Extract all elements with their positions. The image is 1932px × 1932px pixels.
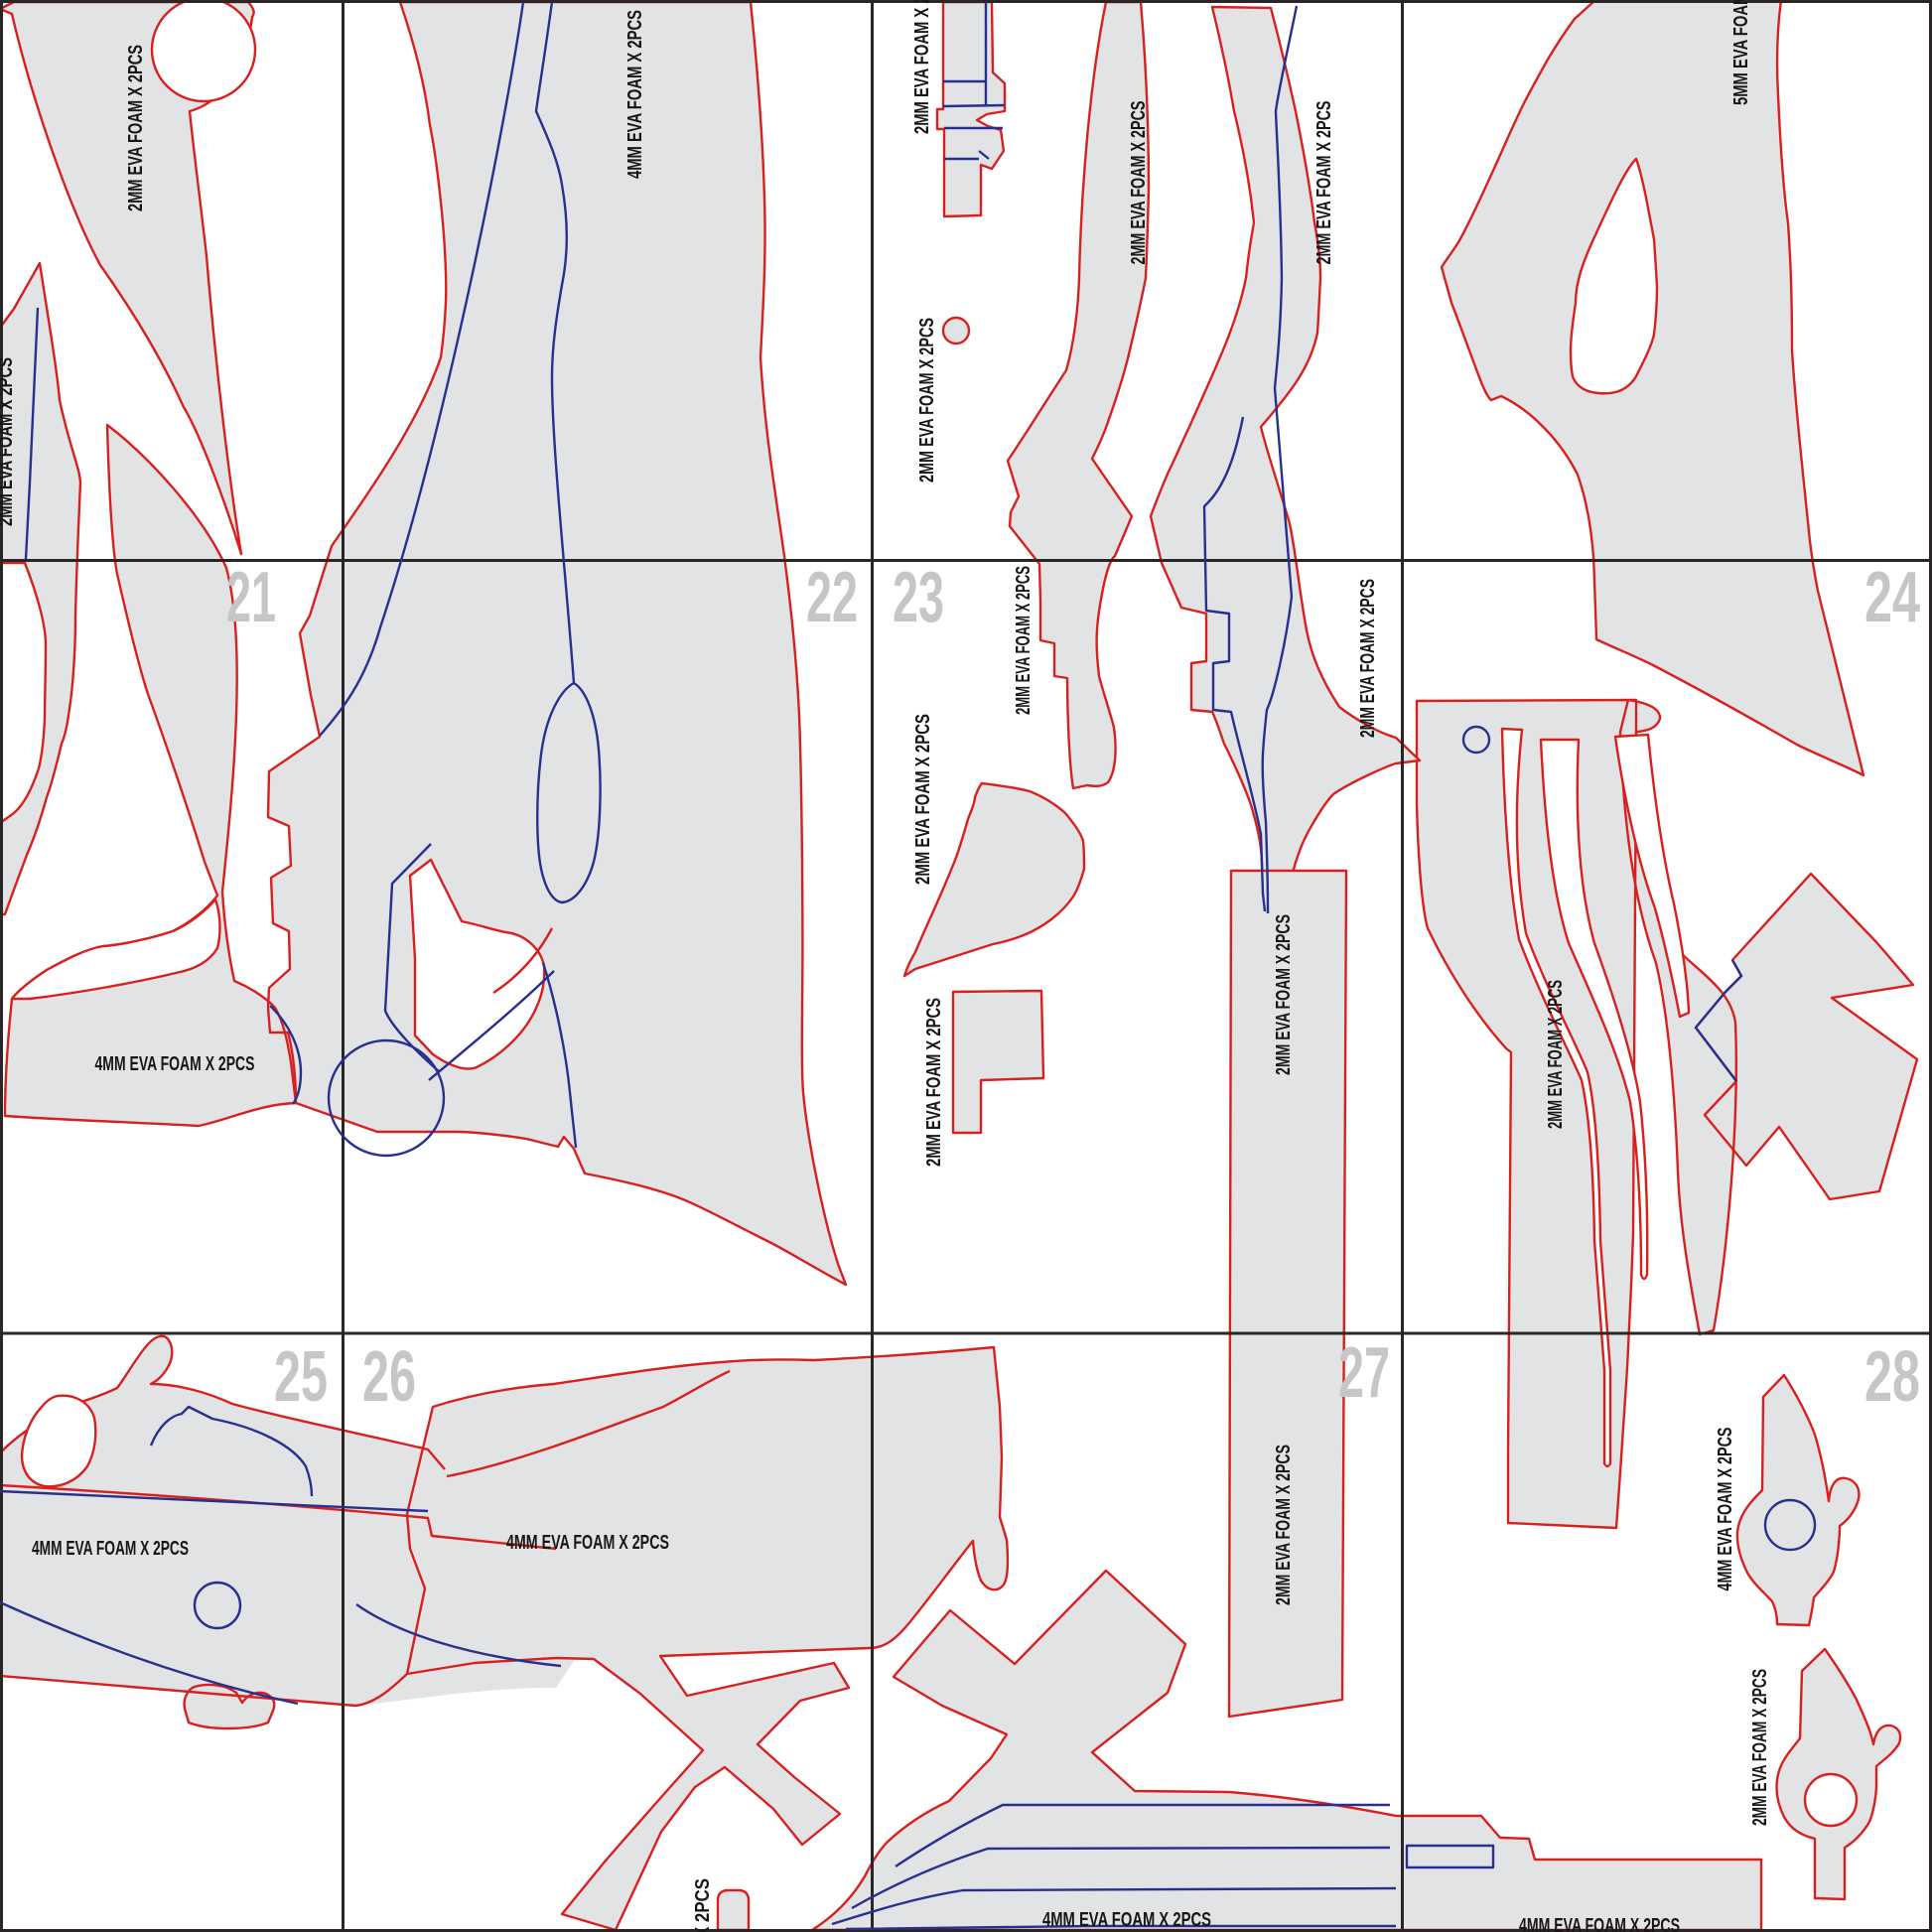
svg-text:2MM EVA FOAM X 2PCS: 2MM EVA FOAM X 2PCS — [1013, 566, 1035, 715]
svg-text:4MM EVA FOAM X 2PCS: 4MM EVA FOAM X 2PCS — [32, 1538, 189, 1560]
svg-text:2MM EVA FOAM X 2PCS: 2MM EVA FOAM X 2PCS — [1273, 1445, 1295, 1605]
svg-text:26: 26 — [362, 1337, 416, 1417]
svg-text:2MM EVA FOAM X 2PCS: 2MM EVA FOAM X 2PCS — [1273, 914, 1295, 1075]
svg-text:2MM EVA FOAM X 2PCS: 2MM EVA FOAM X 2PCS — [912, 714, 934, 885]
svg-text:27: 27 — [1338, 1333, 1390, 1413]
svg-text:2MM EVA FOAM X 2PCS: 2MM EVA FOAM X 2PCS — [0, 357, 17, 526]
svg-text:4MM EVA FOAM X 2PCS: 4MM EVA FOAM X 2PCS — [1715, 1428, 1736, 1591]
svg-text:4MM EVA FOAM X 2PCS: 4MM EVA FOAM X 2PCS — [1519, 1915, 1680, 1932]
svg-text:2MM EVA FOAM X 2PCS: 2MM EVA FOAM X 2PCS — [1313, 101, 1335, 265]
svg-text:2MM EVA FOAM X 2PCS: 2MM EVA FOAM X 2PCS — [923, 998, 945, 1167]
svg-text:4MM EVA FOAM X 2PCS: 4MM EVA FOAM X 2PCS — [624, 10, 646, 179]
svg-text:4MM EVA FOAM X 2PCS: 4MM EVA FOAM X 2PCS — [1042, 1909, 1211, 1931]
svg-text:21: 21 — [226, 558, 276, 637]
svg-text:25: 25 — [274, 1337, 328, 1417]
svg-text:4MM EVA FOAM X 2PCS: 4MM EVA FOAM X 2PCS — [95, 1053, 255, 1075]
svg-text:4MM EVA FOAM X 2PCS: 4MM EVA FOAM X 2PCS — [506, 1532, 669, 1554]
svg-text:28: 28 — [1864, 1337, 1920, 1417]
svg-text:2MM EVA FOAM X 2PCS: 2MM EVA FOAM X 2PCS — [125, 45, 147, 211]
svg-text:24: 24 — [1864, 558, 1920, 637]
svg-text:23: 23 — [893, 558, 944, 637]
svg-text:22: 22 — [806, 558, 858, 637]
svg-text:2MM EVA FOAM X 2PCS: 2MM EVA FOAM X 2PCS — [916, 318, 938, 483]
svg-text:2MM EVA FOAM X 2PCS: 2MM EVA FOAM X 2PCS — [911, 0, 933, 134]
svg-text:2MM EVA FOAM X 2PCS: 2MM EVA FOAM X 2PCS — [1749, 1669, 1771, 1826]
svg-text:2MM EVA FOAM X 2PCS: 2MM EVA FOAM X 2PCS — [1545, 980, 1567, 1129]
svg-text:2MM EVA FOAM X 2PCS: 2MM EVA FOAM X 2PCS — [1128, 101, 1150, 265]
svg-text:5MM EVA FOAM X 2PCS: 5MM EVA FOAM X 2PCS — [1730, 0, 1752, 105]
svg-text:X 2PCS: X 2PCS — [692, 1878, 714, 1932]
svg-text:2MM EVA FOAM X 2PCS: 2MM EVA FOAM X 2PCS — [1357, 579, 1379, 738]
